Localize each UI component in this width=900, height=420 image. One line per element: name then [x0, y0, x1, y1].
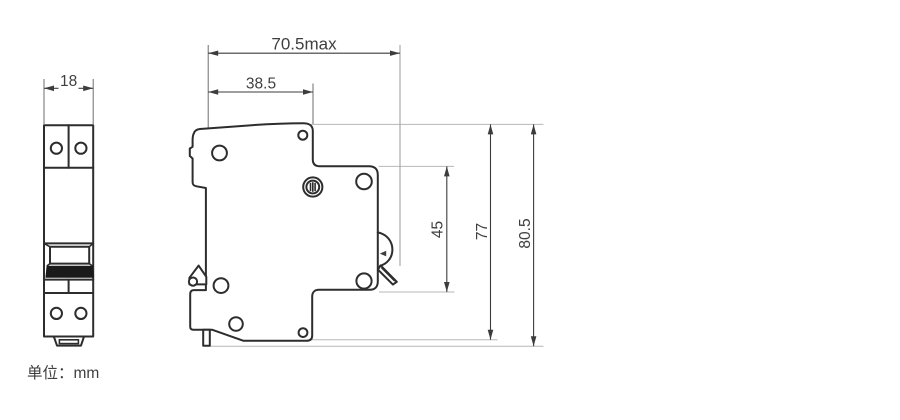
arrow-right-icon — [390, 51, 400, 56]
dimension-max-depth: 70.5max — [208, 35, 400, 56]
rivet-hole — [299, 328, 308, 337]
dimension-front-depth: 38.5 — [208, 76, 313, 95]
dim-label-overall-height: 80.5 — [517, 218, 534, 248]
terminal-screw-hole — [51, 143, 62, 154]
front-view: 18 — [44, 73, 94, 346]
bottom-mounting-tab — [54, 337, 84, 346]
dim-label-max-depth: 70.5max — [271, 35, 337, 54]
arrow-right-icon — [83, 86, 93, 92]
rivet-hole — [212, 146, 227, 161]
circuit-breaker-dimension-drawing: 18 — [0, 0, 900, 420]
arrow-up-icon — [444, 166, 450, 176]
toggle-switch — [44, 243, 94, 279]
rivet-hole — [298, 131, 307, 140]
arrow-up-icon — [488, 124, 494, 134]
terminal-screw-pointer — [378, 233, 397, 285]
dim-label-recess-height: 45 — [430, 221, 447, 238]
arrow-down-icon — [488, 330, 494, 340]
unit-label: 单位：mm — [27, 364, 99, 382]
slotted-screw-icon — [303, 177, 322, 196]
dimension-recess-height: 45 — [430, 166, 450, 292]
mounting-foot — [203, 330, 210, 346]
arrow-left-icon — [208, 89, 218, 94]
technical-drawing-page: 18 — [0, 0, 900, 420]
arrow-down-icon — [444, 282, 450, 292]
arrow-left-icon — [208, 51, 218, 56]
side-view: 70.5max 38.5 45 77 80.5 — [189, 35, 544, 347]
terminal-screw-hole — [75, 143, 86, 154]
dim-label-body-height: 77 — [474, 223, 491, 240]
dim-label-front-width: 18 — [60, 73, 77, 90]
arrow-down-icon — [531, 336, 537, 346]
rivet-hole — [229, 317, 243, 331]
arrow-up-icon — [531, 124, 537, 134]
dimension-body-height: 77 — [474, 124, 493, 339]
rivet-hole — [214, 278, 229, 293]
din-rail-clip — [189, 266, 206, 286]
arrow-left-icon — [44, 86, 54, 92]
rivet-hole — [356, 273, 371, 288]
dimension-overall-height: 80.5 — [517, 124, 536, 346]
terminal-screw-hole — [51, 308, 62, 319]
arrow-right-icon — [303, 89, 313, 94]
dimension-front-width: 18 — [44, 73, 93, 124]
terminal-screw-hole — [75, 308, 86, 319]
rivet-hole — [356, 174, 372, 190]
dim-label-front-depth: 38.5 — [246, 76, 276, 93]
toggle-handle — [45, 266, 94, 278]
